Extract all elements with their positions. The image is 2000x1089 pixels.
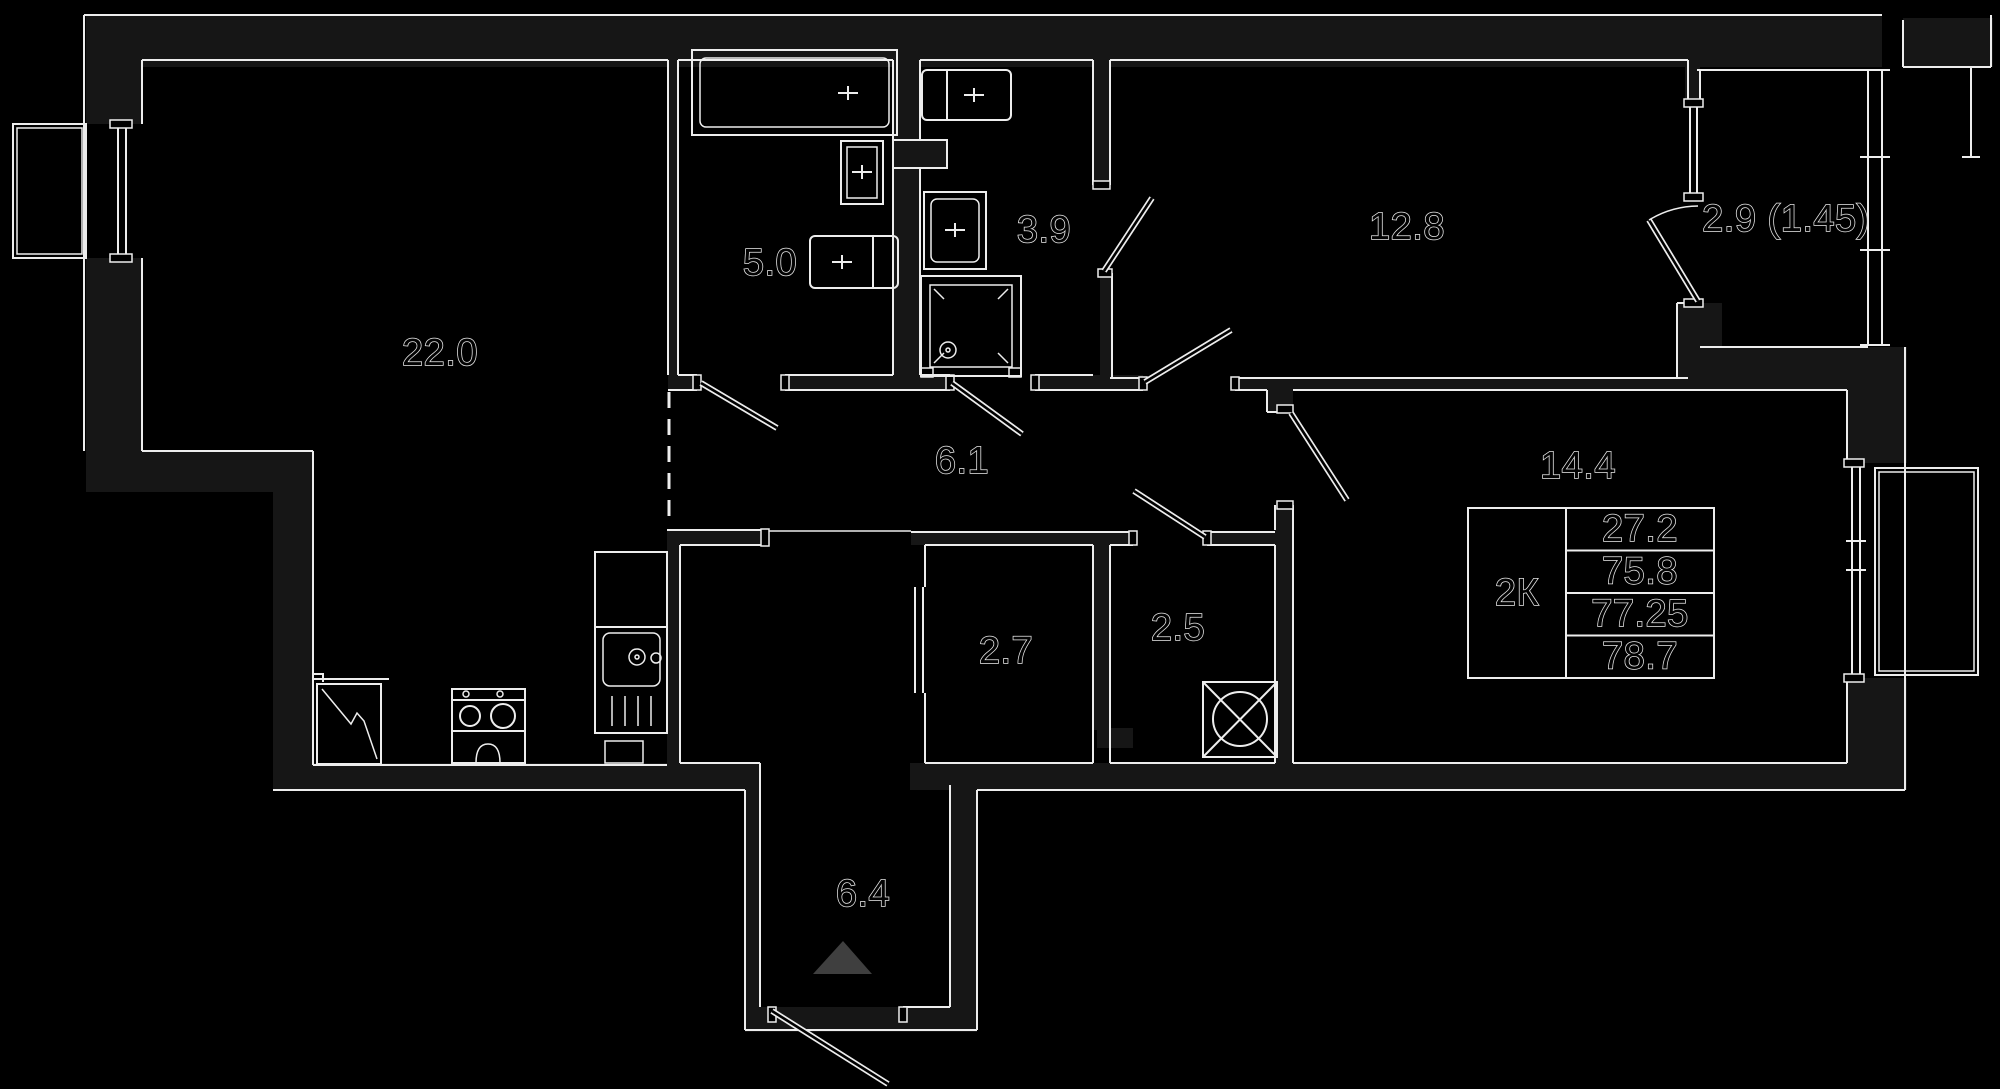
room-label-bedroom-2: 14.4 xyxy=(1540,445,1616,487)
room-label-balcony: 2.9 (1.45) xyxy=(1702,198,1870,240)
table-value-row3: 77.25 xyxy=(1591,593,1689,635)
vent-shaft xyxy=(893,140,947,168)
left-window-opening xyxy=(86,124,142,258)
apartment-type-label: 2К xyxy=(1495,572,1539,614)
table-value-row4: 78.7 xyxy=(1602,636,1678,678)
room-label-laundry: 2.5 xyxy=(1151,607,1205,649)
table-value-row1: 27.2 xyxy=(1602,508,1678,550)
room-label-bedroom-1: 12.8 xyxy=(1369,206,1445,248)
room-label-bathroom: 5.0 xyxy=(743,242,797,284)
room-label-shower-room: 3.9 xyxy=(1017,209,1071,251)
table-value-row2: 75.8 xyxy=(1602,551,1678,593)
room-label-living-kitchen: 22.0 xyxy=(402,332,478,374)
room-label-hallway: 6.1 xyxy=(935,440,989,482)
room-label-entry-hall: 6.4 xyxy=(836,873,890,915)
room-label-wardrobe: 2.7 xyxy=(979,630,1033,672)
floor-plan-page: 2К 27.2 75.8 77.25 78.7 22.0 5.0 3.9 12.… xyxy=(0,0,2000,1089)
floor-plan-canvas: 2К 27.2 75.8 77.25 78.7 22.0 5.0 3.9 12.… xyxy=(0,0,2000,1089)
